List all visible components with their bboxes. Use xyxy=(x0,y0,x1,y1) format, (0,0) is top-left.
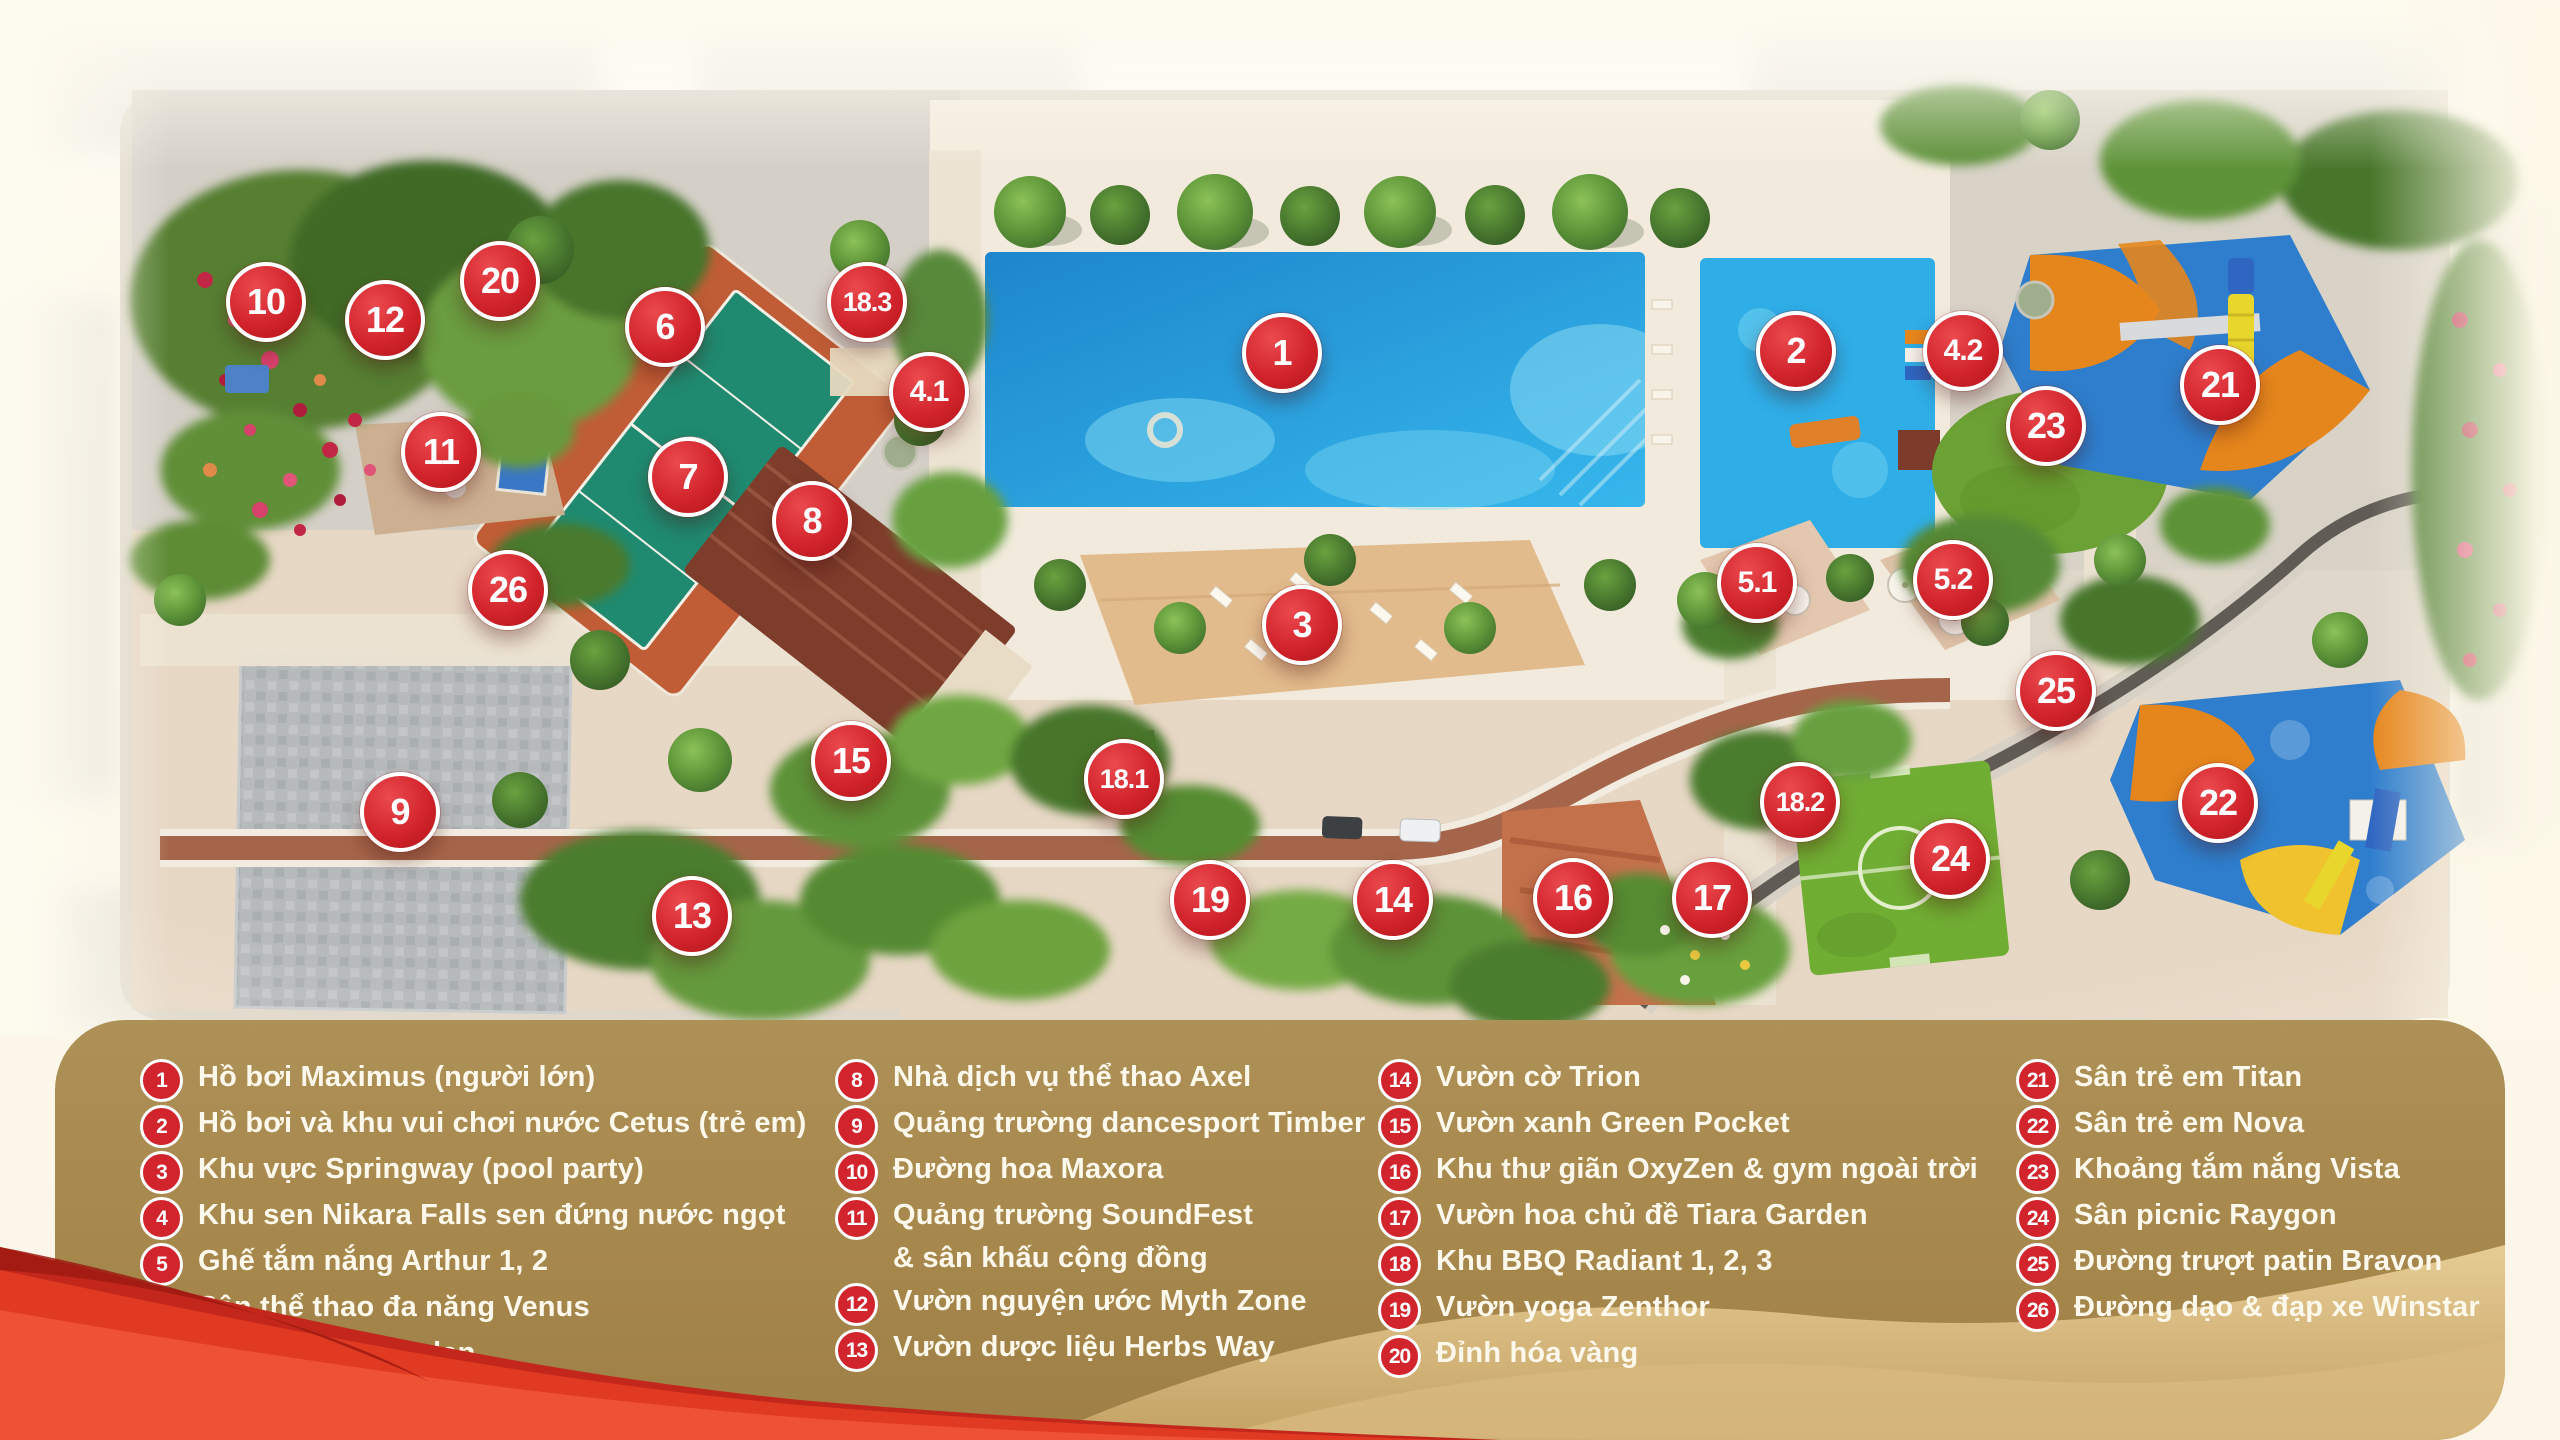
map-marker-7: 7 xyxy=(648,437,728,517)
legend-item-18: 18Khu BBQ Radiant 1, 2, 3 xyxy=(1378,1240,1978,1286)
legend-item-label: Sân thể thao đa năng Venus xyxy=(198,1286,590,1329)
legend-item-number: 13 xyxy=(835,1329,878,1372)
legend-item-number: 26 xyxy=(2016,1289,2059,1332)
legend-item-label: Đỉnh hóa vàng xyxy=(1436,1332,1638,1375)
legend-item-number: 21 xyxy=(2016,1059,2059,1102)
map-marker-18.3: 18.3 xyxy=(827,262,907,342)
map-marker-18.2: 18.2 xyxy=(1760,762,1840,842)
legend-item-12: 12Vườn nguyện ước Myth Zone xyxy=(835,1280,1365,1326)
legend-column-1-wrap: 1Hồ bơi Maximus (người lớn)2Hồ bơi và kh… xyxy=(140,1056,807,1378)
legend-column-4-wrap: 21Sân trẻ em Titan22Sân trẻ em Nova23Kho… xyxy=(2016,1056,2480,1332)
legend-item-number: 5 xyxy=(140,1243,183,1286)
legend-panel: 1Hồ bơi Maximus (người lớn)2Hồ bơi và kh… xyxy=(55,1020,2505,1440)
legend-item-label: Khu thư giãn OxyZen & gym ngoài trời xyxy=(1436,1148,1978,1191)
legend-item-10: 10Đường hoa Maxora xyxy=(835,1148,1365,1194)
map-marker-5.1: 5.1 xyxy=(1717,543,1797,623)
legend-item-number: 4 xyxy=(140,1197,183,1240)
legend-item-6: 6Sân thể thao đa năng Venus xyxy=(140,1286,807,1332)
legend-item-9: 9Quảng trường dancesport Timber xyxy=(835,1102,1365,1148)
map-marker-19: 19 xyxy=(1170,860,1250,940)
legend-item-2: 2Hồ bơi và khu vui chơi nước Cetus (trẻ … xyxy=(140,1102,807,1148)
legend-item-17: 17Vườn hoa chủ đề Tiara Garden xyxy=(1378,1194,1978,1240)
legend-item-label: Vườn hoa chủ đề Tiara Garden xyxy=(1436,1194,1868,1237)
legend-column-2-wrap: 8Nhà dịch vụ thể thao Axel9Quảng trường … xyxy=(835,1056,1365,1372)
legend-item-number: 22 xyxy=(2016,1105,2059,1148)
legend-item-26: 26Đường dạo & đạp xe Winstar xyxy=(2016,1286,2480,1332)
legend-item-number: 11 xyxy=(835,1197,878,1240)
legend-item-number: 24 xyxy=(2016,1197,2059,1240)
map-marker-15: 15 xyxy=(811,721,891,801)
map-marker-8: 8 xyxy=(772,481,852,561)
map-marker-1: 1 xyxy=(1242,313,1322,393)
legend-item-label: Hồ bơi Maximus (người lớn) xyxy=(198,1056,595,1099)
legend-item-25: 25Đường trượt patin Bravon xyxy=(2016,1240,2480,1286)
legend-item-16: 16Khu thư giãn OxyZen & gym ngoài trời xyxy=(1378,1148,1978,1194)
legend-column-3: 14Vườn cờ Trion15Vườn xanh Green Pocket1… xyxy=(1378,1056,1978,1378)
legend-item-number: 17 xyxy=(1378,1197,1421,1240)
legend-column-3-wrap: 14Vườn cờ Trion15Vườn xanh Green Pocket1… xyxy=(1378,1056,1978,1378)
legend-item-label: Vườn cờ Trion xyxy=(1436,1056,1641,1099)
legend-item-label: Quảng trường dancesport Timber xyxy=(893,1102,1365,1145)
map-marker-21: 21 xyxy=(2180,345,2260,425)
legend-item-label: Ghế tắm nắng Arthur 1, 2 xyxy=(198,1240,548,1283)
map-marker-10: 10 xyxy=(226,262,306,342)
map-marker-12: 12 xyxy=(345,280,425,360)
legend-item-label: Khu sen Nikara Falls sen đứng nước ngọt xyxy=(198,1194,786,1237)
legend-item-number: 6 xyxy=(140,1289,183,1332)
map-marker-16: 16 xyxy=(1533,858,1613,938)
map-marker-4.2: 4.2 xyxy=(1923,311,2003,391)
map-marker-6: 6 xyxy=(625,287,705,367)
legend-item-22: 22Sân trẻ em Nova xyxy=(2016,1102,2480,1148)
legend-item-label: Khoảng tắm nắng Vista xyxy=(2074,1148,2400,1191)
legend-item-label: Nhà dịch vụ thể thao Axel xyxy=(893,1056,1251,1099)
legend-item-label: Vườn nguyện ước Myth Zone xyxy=(893,1280,1307,1323)
legend-item-label: Sân trẻ em Nova xyxy=(2074,1102,2304,1145)
legend-item-21: 21Sân trẻ em Titan xyxy=(2016,1056,2480,1102)
legend-item-13: 13Vườn dược liệu Herbs Way xyxy=(835,1326,1365,1372)
map-marker-4.1: 4.1 xyxy=(889,352,969,432)
legend-item-label: Đường dạo & đạp xe Winstar xyxy=(2074,1286,2480,1329)
legend-item-19: 19Vườn yoga Zenthor xyxy=(1378,1286,1978,1332)
legend-item-number: 20 xyxy=(1378,1335,1421,1378)
legend-item-number: 1 xyxy=(140,1059,183,1102)
legend-item-7: 7Sân bóng rổ Jordan xyxy=(140,1332,807,1378)
legend-item-number: 19 xyxy=(1378,1289,1421,1332)
legend-item-number: 2 xyxy=(140,1105,183,1148)
legend-item-14: 14Vườn cờ Trion xyxy=(1378,1056,1978,1102)
legend-item-number: 8 xyxy=(835,1059,878,1102)
map-marker-14: 14 xyxy=(1353,860,1433,940)
map-marker-26: 26 xyxy=(468,550,548,630)
legend-item-number: 9 xyxy=(835,1105,878,1148)
legend-item-number: 15 xyxy=(1378,1105,1421,1148)
legend-item-number: 10 xyxy=(835,1151,878,1194)
legend-item-15: 15Vườn xanh Green Pocket xyxy=(1378,1102,1978,1148)
legend-item-label: Sân trẻ em Titan xyxy=(2074,1056,2302,1099)
legend-item-number: 3 xyxy=(140,1151,183,1194)
legend-item-11: 11Quảng trường SoundFest& sân khấu cộng … xyxy=(835,1194,1365,1280)
legend-item-label: Khu BBQ Radiant 1, 2, 3 xyxy=(1436,1240,1773,1283)
legend-item-5: 5Ghế tắm nắng Arthur 1, 2 xyxy=(140,1240,807,1286)
legend-item-20: 20Đỉnh hóa vàng xyxy=(1378,1332,1978,1378)
legend-column-4: 21Sân trẻ em Titan22Sân trẻ em Nova23Kho… xyxy=(2016,1056,2480,1332)
legend-item-number: 12 xyxy=(835,1283,878,1326)
legend-item-label: Vườn xanh Green Pocket xyxy=(1436,1102,1790,1145)
map-markers: 1234.14.25.15.26789101112131415161718.11… xyxy=(0,0,2560,1035)
map-marker-23: 23 xyxy=(2006,386,2086,466)
legend-item-label: Khu vực Springway (pool party) xyxy=(198,1148,644,1191)
legend-item-label: Quảng trường SoundFest& sân khấu cộng đồ… xyxy=(893,1194,1253,1280)
legend-column-2: 8Nhà dịch vụ thể thao Axel9Quảng trường … xyxy=(835,1056,1365,1372)
legend-item-label: Đường hoa Maxora xyxy=(893,1148,1163,1191)
map-marker-13: 13 xyxy=(652,876,732,956)
legend-item-number: 16 xyxy=(1378,1151,1421,1194)
legend-item-label: Sân bóng rổ Jordan xyxy=(198,1332,476,1375)
map-marker-5.2: 5.2 xyxy=(1913,540,1993,620)
legend-item-label: Đường trượt patin Bravon xyxy=(2074,1240,2442,1283)
map-marker-11: 11 xyxy=(401,412,481,492)
legend-item-number: 23 xyxy=(2016,1151,2059,1194)
legend-item-label: Sân picnic Raygon xyxy=(2074,1194,2337,1237)
map-marker-18.1: 18.1 xyxy=(1084,739,1164,819)
legend-item-24: 24Sân picnic Raygon xyxy=(2016,1194,2480,1240)
map-marker-20: 20 xyxy=(460,241,540,321)
legend-item-label: Hồ bơi và khu vui chơi nước Cetus (trẻ e… xyxy=(198,1102,807,1145)
legend-item-1: 1Hồ bơi Maximus (người lớn) xyxy=(140,1056,807,1102)
map-marker-22: 22 xyxy=(2178,763,2258,843)
map-marker-9: 9 xyxy=(360,772,440,852)
amenity-map-poster: 1234.14.25.15.26789101112131415161718.11… xyxy=(0,0,2560,1440)
legend-column-1: 1Hồ bơi Maximus (người lớn)2Hồ bơi và kh… xyxy=(140,1056,807,1378)
map-marker-17: 17 xyxy=(1672,858,1752,938)
legend-item-number: 25 xyxy=(2016,1243,2059,1286)
map-marker-25: 25 xyxy=(2016,651,2096,731)
legend-item-3: 3Khu vực Springway (pool party) xyxy=(140,1148,807,1194)
legend-item-label: Vườn dược liệu Herbs Way xyxy=(893,1326,1275,1369)
legend-item-number: 14 xyxy=(1378,1059,1421,1102)
legend-item-number: 7 xyxy=(140,1335,183,1378)
legend-item-label: Vườn yoga Zenthor xyxy=(1436,1286,1710,1329)
legend-item-8: 8Nhà dịch vụ thể thao Axel xyxy=(835,1056,1365,1102)
legend-item-23: 23Khoảng tắm nắng Vista xyxy=(2016,1148,2480,1194)
legend-item-number: 18 xyxy=(1378,1243,1421,1286)
map-marker-3: 3 xyxy=(1262,585,1342,665)
map-marker-2: 2 xyxy=(1756,311,1836,391)
legend-item-4: 4Khu sen Nikara Falls sen đứng nước ngọt xyxy=(140,1194,807,1240)
site-map: 1234.14.25.15.26789101112131415161718.11… xyxy=(0,0,2560,1035)
map-marker-24: 24 xyxy=(1910,819,1990,899)
